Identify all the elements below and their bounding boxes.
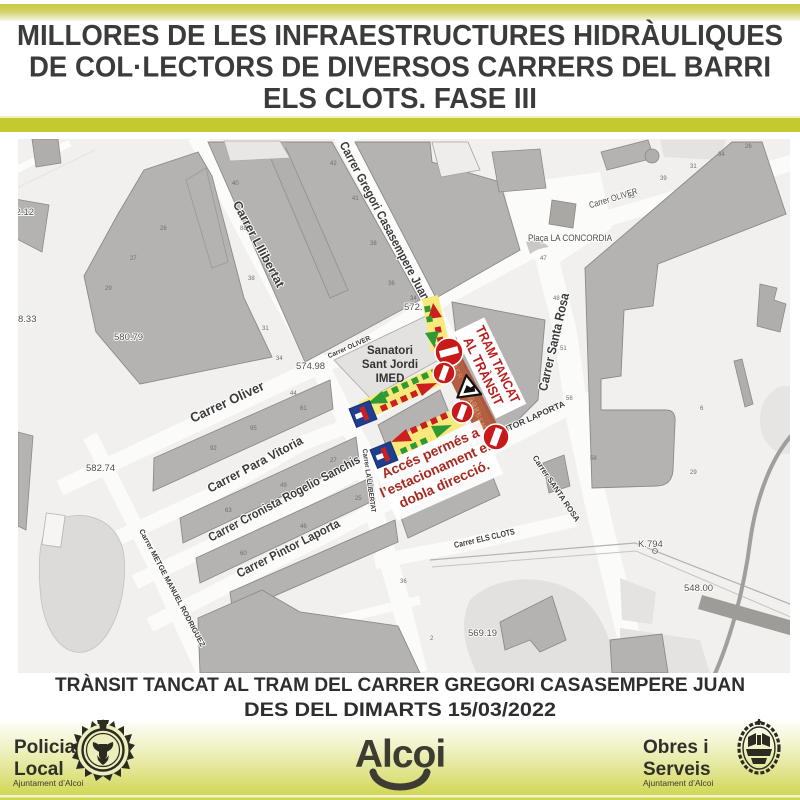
svg-text:31: 31 (262, 326, 269, 332)
svg-text:49: 49 (280, 483, 287, 489)
svg-text:42: 42 (330, 161, 337, 167)
svg-text:95: 95 (250, 426, 257, 432)
svg-text:27: 27 (330, 458, 337, 464)
svg-text:35: 35 (628, 194, 635, 200)
svg-text:Local: Local (14, 759, 64, 780)
svg-text:48: 48 (553, 296, 560, 302)
svg-text:60: 60 (240, 551, 247, 557)
svg-text:Serveis: Serveis (643, 759, 711, 780)
svg-text:92: 92 (210, 446, 217, 452)
svg-text:51: 51 (560, 346, 567, 352)
svg-text:DE COL·LECTORS DE DIVERSOS CAR: DE COL·LECTORS DE DIVERSOS CARRERS DEL B… (29, 52, 771, 84)
svg-text:580.79: 580.79 (114, 332, 143, 343)
svg-text:88: 88 (240, 226, 247, 232)
svg-text:DES DEL DIMARTS 15/03/2022: DES DEL DIMARTS 15/03/2022 (244, 699, 556, 721)
svg-text:34: 34 (276, 356, 283, 362)
svg-text:47: 47 (540, 256, 547, 262)
svg-text:Ajuntament d’Alcoi: Ajuntament d’Alcoi (643, 778, 714, 788)
svg-text:ELS CLOTS. FASE III: ELS CLOTS. FASE III (263, 83, 537, 115)
svg-text:TRÀNSIT TANCAT AL TRAM DEL CAR: TRÀNSIT TANCAT AL TRAM DEL CARRER GREGOR… (55, 673, 745, 696)
svg-text:36: 36 (400, 579, 407, 585)
svg-text:582.74: 582.74 (86, 463, 115, 474)
svg-text:Sanatori: Sanatori (367, 345, 413, 357)
svg-text:K.794: K.794 (638, 539, 663, 550)
svg-text:38: 38 (248, 276, 255, 282)
svg-text:40: 40 (232, 181, 239, 187)
svg-text:27: 27 (130, 256, 137, 262)
svg-text:Policia: Policia (14, 737, 76, 758)
svg-text:34: 34 (718, 152, 725, 158)
svg-text:29: 29 (105, 286, 112, 292)
svg-text:25: 25 (355, 496, 362, 502)
svg-text:38: 38 (370, 241, 377, 247)
svg-text:34: 34 (410, 296, 417, 302)
svg-text:548.00: 548.00 (684, 583, 713, 594)
svg-text:56: 56 (566, 396, 573, 402)
svg-text:MILLORES DE LES INFRAESTRUCTUR: MILLORES DE LES INFRAESTRUCTURES HIDRÀUL… (17, 20, 783, 52)
svg-text:Obres i: Obres i (643, 737, 708, 758)
svg-text:31: 31 (690, 164, 697, 170)
svg-text:Plaça LA CONCORDIA: Plaça LA CONCORDIA (528, 233, 613, 244)
svg-text:574.98: 574.98 (296, 361, 325, 372)
svg-text:58: 58 (590, 456, 597, 462)
svg-text:61: 61 (300, 406, 307, 412)
svg-text:36: 36 (388, 281, 395, 287)
svg-text:41: 41 (352, 196, 359, 202)
svg-text:569.19: 569.19 (468, 628, 497, 639)
svg-text:Sant Jordi: Sant Jordi (362, 359, 418, 371)
svg-text:39: 39 (660, 176, 667, 182)
svg-text:Ajuntament d’Alcoi: Ajuntament d’Alcoi (13, 778, 84, 788)
svg-text:29: 29 (690, 470, 697, 476)
svg-text:26: 26 (160, 226, 167, 232)
svg-text:46: 46 (300, 524, 307, 530)
svg-text:8.33: 8.33 (18, 314, 37, 325)
svg-text:Alcoi: Alcoi (355, 733, 445, 776)
svg-text:63: 63 (225, 508, 232, 514)
svg-text:26: 26 (745, 144, 752, 150)
svg-text:44: 44 (290, 391, 297, 397)
